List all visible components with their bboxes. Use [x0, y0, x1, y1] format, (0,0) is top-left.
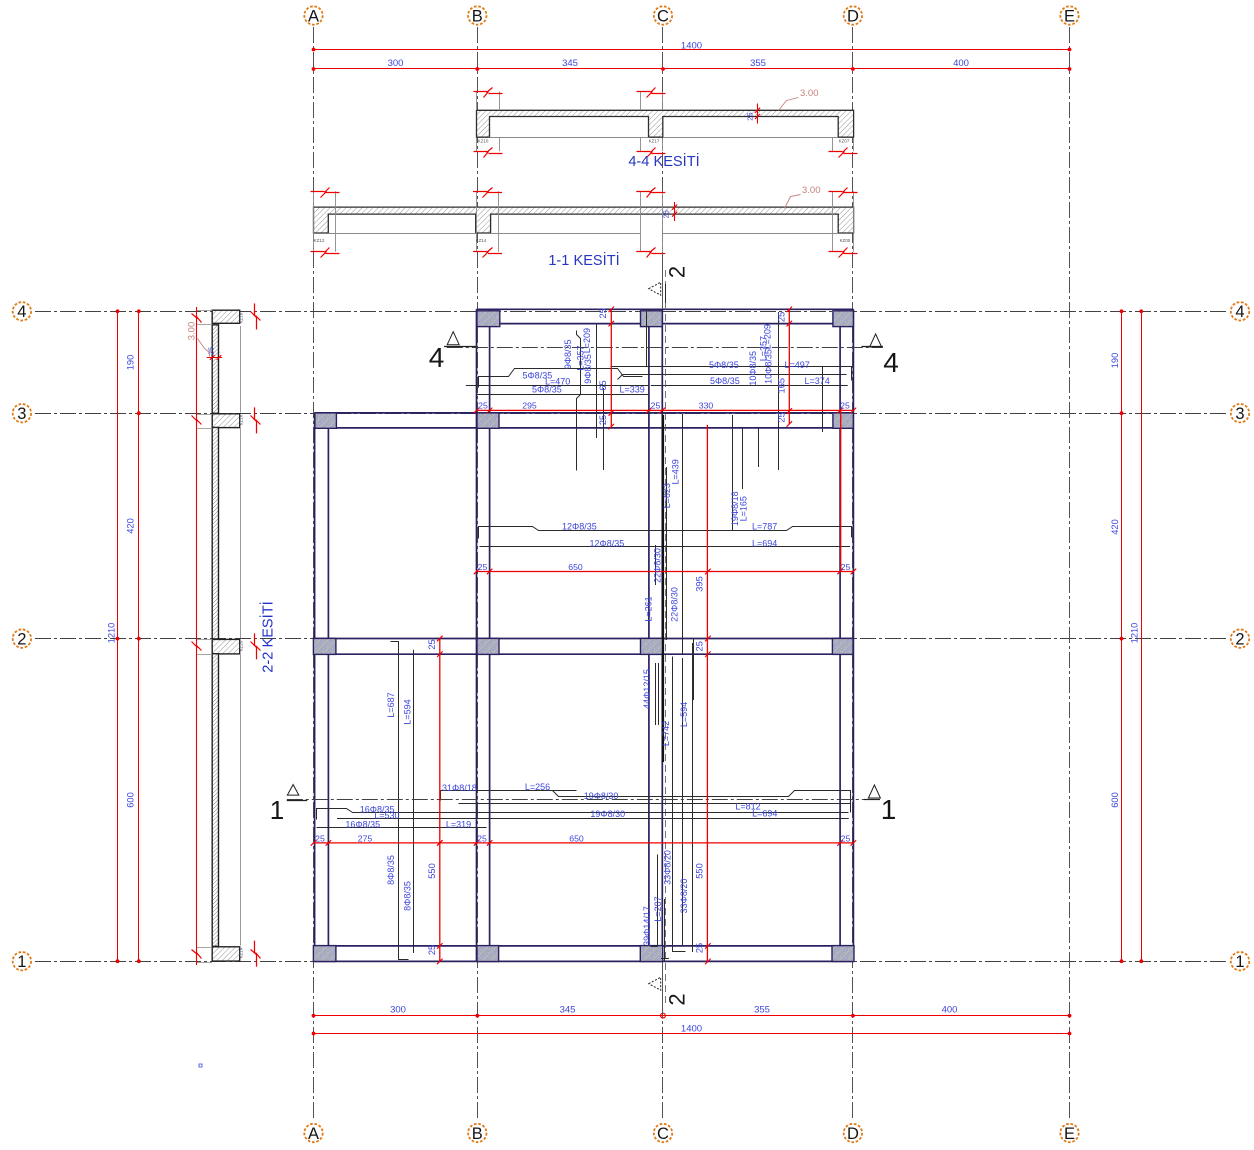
svg-text:L=742: L=742 [661, 721, 671, 746]
svg-text:1: 1 [1235, 953, 1244, 971]
svg-text:E: E [1064, 1125, 1075, 1143]
svg-text:25: 25 [841, 562, 851, 572]
svg-text:1400: 1400 [681, 41, 702, 52]
svg-text:650: 650 [569, 833, 584, 843]
svg-text:L=256: L=256 [525, 782, 550, 792]
svg-text:600: 600 [1110, 792, 1120, 808]
svg-text:25: 25 [694, 641, 704, 651]
svg-text:L=694: L=694 [752, 539, 777, 549]
svg-text:B: B [472, 8, 483, 26]
svg-text:2-2 KESİTİ: 2-2 KESİTİ [259, 601, 277, 672]
svg-text:395: 395 [694, 576, 704, 592]
svg-text:1: 1 [881, 794, 897, 825]
svg-text:3: 3 [17, 405, 26, 423]
svg-text:A: A [308, 1125, 319, 1143]
svg-text:KZ14: KZ14 [239, 947, 244, 958]
svg-text:L=687: L=687 [386, 692, 396, 717]
svg-text:L=209: L=209 [582, 328, 592, 353]
svg-text:22Φ8/30: 22Φ8/30 [670, 587, 680, 622]
svg-text:L=594: L=594 [679, 702, 689, 727]
svg-text:25: 25 [477, 833, 487, 843]
svg-text:8Φ8/35: 8Φ8/35 [386, 855, 396, 885]
svg-text:25: 25 [598, 308, 608, 318]
svg-text:19Φ8/30: 19Φ8/30 [584, 791, 619, 801]
svg-text:1210: 1210 [107, 623, 117, 644]
svg-text:A: A [308, 8, 319, 26]
svg-text:22Φ8/30: 22Φ8/30 [653, 548, 663, 583]
svg-text:L=694: L=694 [752, 809, 777, 819]
svg-text:10Φ8/35: 10Φ8/35 [748, 351, 758, 386]
svg-text:550: 550 [694, 863, 704, 879]
svg-text:400: 400 [953, 58, 969, 69]
svg-text:25: 25 [598, 415, 608, 425]
svg-text:39Φ14/17: 39Φ14/17 [642, 906, 652, 946]
svg-text:16Φ8/35: 16Φ8/35 [345, 820, 380, 830]
svg-text:420: 420 [126, 518, 136, 534]
svg-text:25: 25 [776, 412, 786, 422]
svg-text:650: 650 [568, 562, 583, 572]
svg-text:KZ14: KZ14 [476, 238, 487, 243]
svg-text:L=497: L=497 [785, 360, 810, 370]
svg-text:L=439: L=439 [671, 459, 681, 484]
svg-text:4: 4 [429, 342, 445, 373]
svg-text:L=319: L=319 [446, 820, 471, 830]
svg-text:2: 2 [665, 266, 690, 278]
svg-text:5Φ8/35: 5Φ8/35 [709, 360, 739, 370]
svg-text:65: 65 [598, 380, 608, 390]
svg-text:9Φ8/35: 9Φ8/35 [583, 354, 593, 384]
svg-text:3.00: 3.00 [187, 322, 198, 341]
svg-text:KZ12: KZ12 [314, 238, 325, 243]
svg-text:12Φ8/35: 12Φ8/35 [562, 522, 597, 532]
svg-text:KZ16: KZ16 [239, 414, 244, 425]
svg-text:4: 4 [1235, 303, 1244, 321]
svg-text:5Φ8/35: 5Φ8/35 [532, 385, 562, 395]
svg-text:25: 25 [776, 312, 786, 322]
svg-text:KZ10: KZ10 [478, 139, 489, 144]
svg-text:L=207: L=207 [653, 896, 663, 921]
svg-text:3.00: 3.00 [802, 185, 821, 196]
svg-text:E: E [1064, 8, 1075, 26]
svg-text:190: 190 [126, 355, 136, 371]
svg-text:25: 25 [662, 210, 671, 218]
svg-text:12Φ8/35: 12Φ8/35 [590, 539, 625, 549]
svg-text:31Φ8/18: 31Φ8/18 [442, 783, 477, 793]
svg-text:25: 25 [840, 401, 850, 411]
svg-text:4: 4 [883, 347, 899, 378]
svg-text:300: 300 [388, 58, 404, 69]
svg-text:25: 25 [478, 562, 488, 572]
svg-text:KZ07: KZ07 [839, 139, 850, 144]
svg-text:C: C [657, 8, 669, 26]
svg-text:25: 25 [841, 833, 851, 843]
svg-text:KZ16: KZ16 [239, 312, 244, 323]
svg-text:L=165: L=165 [738, 496, 748, 521]
svg-text:165: 165 [776, 378, 786, 394]
svg-text:355: 355 [750, 58, 766, 69]
svg-text:D: D [847, 1125, 859, 1143]
svg-text:33Φ8/20: 33Φ8/20 [662, 850, 672, 885]
svg-text:25: 25 [478, 401, 488, 411]
svg-text:L=787: L=787 [752, 522, 777, 532]
svg-text:3.00: 3.00 [800, 88, 819, 99]
svg-text:L=623: L=623 [662, 483, 672, 508]
svg-text:25: 25 [427, 639, 437, 649]
svg-text:3: 3 [1235, 405, 1244, 423]
svg-text:8Φ8/35: 8Φ8/35 [403, 881, 413, 911]
svg-text:2: 2 [1235, 631, 1244, 649]
svg-text:25: 25 [651, 401, 661, 411]
svg-text:4-4 KESİTİ: 4-4 KESİTİ [628, 152, 699, 170]
svg-text:L=594: L=594 [403, 699, 413, 724]
svg-text:5Φ8/35: 5Φ8/35 [710, 376, 740, 386]
svg-text:550: 550 [427, 863, 437, 879]
svg-text:KZ17: KZ17 [649, 139, 660, 144]
svg-text:B: B [472, 1125, 483, 1143]
svg-text:600: 600 [126, 792, 136, 808]
svg-text:1: 1 [270, 795, 284, 825]
svg-text:400: 400 [942, 1005, 958, 1016]
svg-text:10Φ8/35: 10Φ8/35 [764, 349, 774, 384]
svg-text:275: 275 [358, 833, 373, 843]
svg-text:190: 190 [1110, 353, 1120, 369]
svg-text:44Φ12/15: 44Φ12/15 [642, 669, 652, 709]
svg-text:L=339: L=339 [620, 385, 645, 395]
svg-text:KZ20: KZ20 [239, 640, 244, 651]
svg-text:1: 1 [17, 953, 26, 971]
svg-text:C: C [657, 1125, 669, 1143]
svg-text:4: 4 [17, 303, 26, 321]
svg-text:L=209: L=209 [763, 324, 773, 349]
svg-text:2: 2 [17, 631, 26, 649]
svg-text:L=374: L=374 [805, 376, 830, 386]
svg-text:420: 420 [1110, 519, 1120, 535]
svg-text:KZ05: KZ05 [840, 238, 851, 243]
svg-text:25: 25 [315, 833, 325, 843]
svg-text:295: 295 [522, 401, 537, 411]
svg-text:33Φ8/20: 33Φ8/20 [679, 879, 689, 914]
svg-text:25: 25 [746, 112, 755, 120]
svg-text:19Φ8/30: 19Φ8/30 [590, 809, 625, 819]
svg-text:1400: 1400 [681, 1024, 702, 1035]
svg-text:330: 330 [699, 401, 714, 411]
svg-text:L=261: L=261 [644, 596, 654, 621]
svg-text:300: 300 [390, 1005, 406, 1016]
svg-text:1-1 KESİTİ: 1-1 KESİTİ [548, 251, 619, 269]
svg-text:345: 345 [562, 58, 578, 69]
svg-text:1210: 1210 [1130, 623, 1140, 644]
svg-text:345: 345 [560, 1005, 576, 1016]
svg-text:25: 25 [694, 943, 704, 953]
svg-text:D: D [847, 8, 859, 26]
svg-text:355: 355 [754, 1005, 770, 1016]
svg-text:9Φ8/35: 9Φ8/35 [563, 339, 573, 369]
svg-text:2: 2 [665, 993, 690, 1005]
svg-text:25: 25 [427, 945, 437, 955]
